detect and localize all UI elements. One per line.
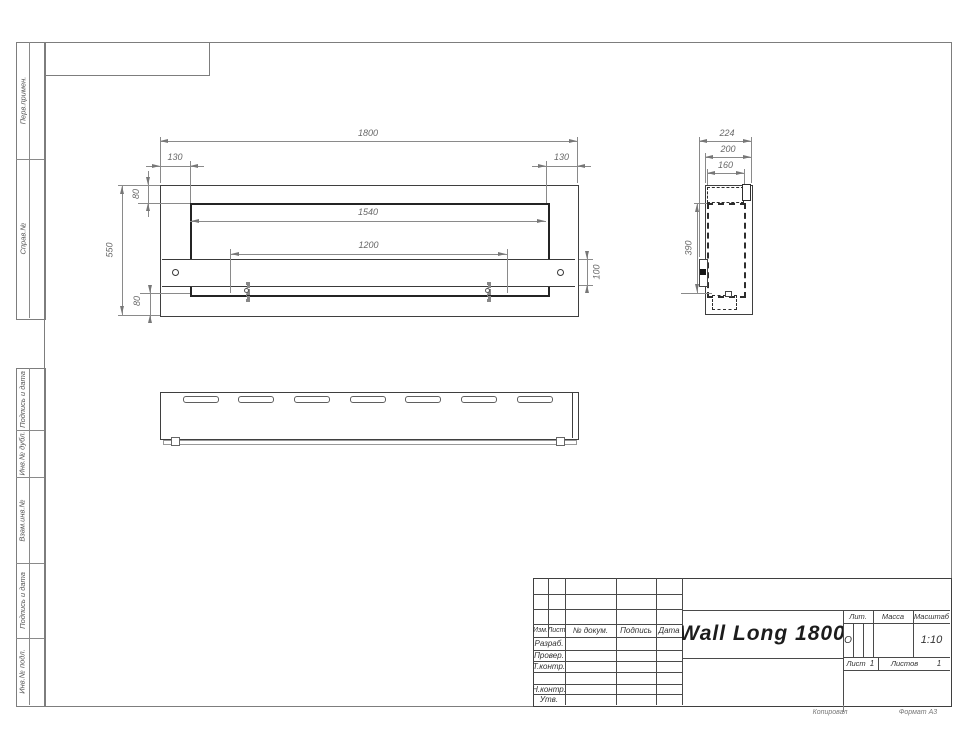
dim-right-offset: 130 xyxy=(543,152,580,162)
extension-line xyxy=(118,185,160,186)
dim-arrow xyxy=(743,155,751,159)
small-hole-right xyxy=(485,288,490,293)
row-utv: Утв. xyxy=(533,694,565,705)
masshtab-header: Масштаб xyxy=(913,610,950,623)
dimension-line xyxy=(160,141,577,142)
row-razrab: Разраб. xyxy=(533,637,565,650)
side-hidden-top-chamber xyxy=(707,187,744,203)
title-block-line xyxy=(863,623,864,657)
dim-arrow xyxy=(120,186,124,194)
document-title: Wall Long 1800 xyxy=(682,610,843,658)
masshtab-value: 1:10 xyxy=(913,623,950,657)
vent-slot xyxy=(461,396,497,403)
row-n-kontr: Н.контр. xyxy=(533,684,565,694)
lit-value: О xyxy=(843,623,853,657)
col-data: Дата xyxy=(656,624,682,637)
bottom-edge-line xyxy=(572,392,573,438)
vent-slot xyxy=(405,396,441,403)
dim-arrow xyxy=(695,284,699,292)
dim-arrow xyxy=(152,164,160,168)
sidebar-label-inv-dubl: Инв.№ дубл. xyxy=(16,430,29,477)
side-hidden-opening xyxy=(707,203,746,298)
dimension-line xyxy=(122,185,123,315)
bottom-foot-left xyxy=(171,437,180,446)
bottom-rail xyxy=(163,440,577,445)
extension-line xyxy=(699,137,700,257)
dim-inner-width: 1540 xyxy=(340,207,396,217)
sidebar-label-sprav-no: Справ.№ xyxy=(16,159,29,318)
row-prover: Провер. xyxy=(533,650,565,661)
sidebar-divider-line xyxy=(29,42,30,318)
dimension-line xyxy=(190,221,546,222)
bottom-foot-right xyxy=(556,437,565,446)
col-list: Лист xyxy=(548,624,565,637)
dim-arrow xyxy=(191,219,199,223)
dimension-line xyxy=(697,203,698,293)
title-block-line xyxy=(853,623,854,657)
front-mounting-bar xyxy=(162,259,575,287)
dimension-line xyxy=(230,254,507,255)
extension-line xyxy=(507,249,508,293)
lit-header: Лит. xyxy=(843,610,873,623)
dim-arrow xyxy=(705,155,713,159)
dim-overall-depth: 224 xyxy=(709,128,745,138)
extension-line xyxy=(140,293,190,294)
col-izm: Изм. xyxy=(533,624,548,637)
extension-line xyxy=(546,161,547,203)
dim-opening-height: 390 xyxy=(681,228,697,268)
row-t-kontr: Т.контр. xyxy=(533,661,565,672)
vent-slot xyxy=(238,396,274,403)
sidebar-label-podpis-data-top: Подпись и дата xyxy=(16,368,29,430)
sidebar-divider-line xyxy=(29,368,30,705)
vent-slot xyxy=(517,396,553,403)
small-hole-left xyxy=(244,288,249,293)
dim-arrow xyxy=(146,203,150,211)
sidebar-label-inv-podl: Инв.№ подл. xyxy=(16,638,29,705)
kopiroval-label: Копировал xyxy=(800,707,860,718)
side-mounting-bolt xyxy=(700,269,706,275)
extension-line xyxy=(681,293,712,294)
side-hidden-burner-tray xyxy=(712,295,737,310)
side-tray-notch xyxy=(725,291,732,297)
side-glass-channel xyxy=(742,184,751,201)
extension-line xyxy=(751,137,752,183)
list-label: Лист xyxy=(844,657,868,670)
dim-arrow xyxy=(569,139,577,143)
extension-line xyxy=(744,169,745,184)
dim-arrow xyxy=(148,315,152,323)
dim-left-offset: 130 xyxy=(157,152,193,162)
dim-bottom-flange: 80 xyxy=(128,288,146,314)
sidebar-label-vzam-inv: Взам.инв.№ xyxy=(16,477,29,563)
dim-arrow xyxy=(537,219,545,223)
dim-arrow xyxy=(231,252,239,256)
sidebar-label-perv-primen: Перв.примен. xyxy=(16,42,29,159)
title-block-line xyxy=(565,578,566,705)
dim-arrow xyxy=(699,139,707,143)
mount-hole-left xyxy=(172,269,179,276)
title-block-line xyxy=(533,594,682,595)
dim-overall-height: 550 xyxy=(100,230,120,270)
title-block-line xyxy=(533,672,682,673)
top-left-reference-box xyxy=(44,42,210,76)
dim-arrow xyxy=(146,177,150,185)
dim-arrow xyxy=(585,285,589,293)
extension-line xyxy=(230,249,231,293)
dim-arrow xyxy=(743,139,751,143)
dim-body-depth: 200 xyxy=(710,144,746,154)
title-block-line xyxy=(616,578,617,705)
mount-hole-right xyxy=(557,269,564,276)
format-label: Формат А3 xyxy=(888,707,948,718)
dim-arrow xyxy=(695,204,699,212)
vent-slot xyxy=(294,396,330,403)
col-n-dokum: № докум. xyxy=(565,624,616,637)
col-podpis: Подпись xyxy=(616,624,656,637)
vent-slot xyxy=(183,396,219,403)
sidebar-label-podpis-data-bottom: Подпись и дата xyxy=(16,563,29,638)
dim-arrow xyxy=(120,306,124,314)
drawing-sheet: Перв.примен. Справ.№ Подпись и дата Инв.… xyxy=(0,0,970,749)
listov-value: 1 xyxy=(930,657,948,670)
title-block-line xyxy=(533,609,682,610)
dim-arrow xyxy=(585,251,589,259)
title-block-line xyxy=(843,670,950,671)
title-block-line xyxy=(878,657,879,670)
title-block-line xyxy=(682,658,843,659)
dim-bracket-height: 100 xyxy=(589,258,605,286)
title-block-line xyxy=(656,578,657,705)
dim-arrow xyxy=(707,171,715,175)
dim-overall-width: 1800 xyxy=(340,128,396,138)
dim-arrow xyxy=(190,164,198,168)
dim-mount-holes-span: 1200 xyxy=(340,240,397,250)
massa-header: Масса xyxy=(873,610,913,623)
list-value: 1 xyxy=(866,657,878,670)
dim-arrow xyxy=(736,171,744,175)
dim-arrow xyxy=(160,139,168,143)
listov-label: Листов xyxy=(882,657,927,670)
dim-arrow xyxy=(148,285,152,293)
dim-arrow xyxy=(538,164,546,168)
dim-arrow xyxy=(577,164,585,168)
dim-arrow xyxy=(498,252,506,256)
dim-inner-depth: 160 xyxy=(707,160,744,170)
vent-slot xyxy=(350,396,386,403)
